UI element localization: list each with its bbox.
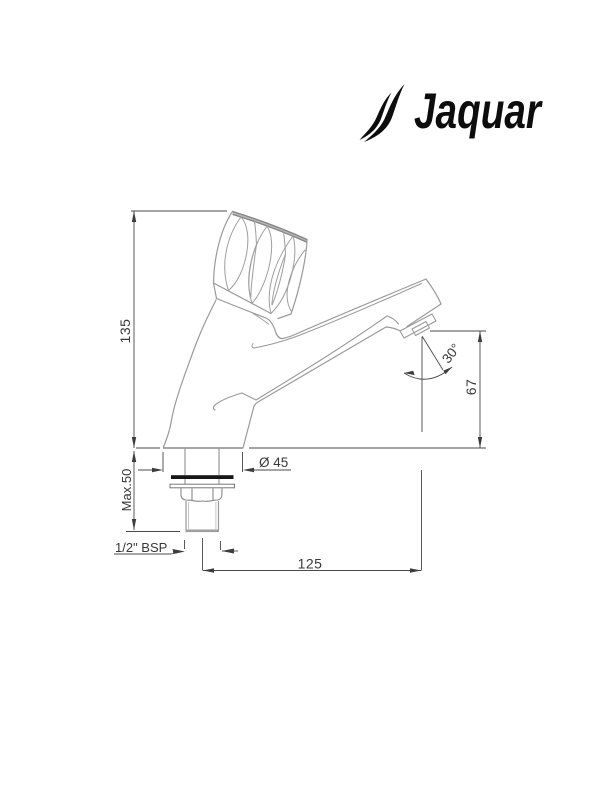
- svg-text:1/2" BSP: 1/2" BSP: [115, 540, 167, 555]
- svg-text:Jaquar: Jaquar: [414, 83, 543, 139]
- svg-text:Ø 45: Ø 45: [259, 455, 288, 470]
- svg-text:135: 135: [117, 319, 133, 344]
- svg-text:125: 125: [298, 556, 323, 572]
- svg-text:67: 67: [463, 379, 479, 396]
- svg-text:Max.50: Max.50: [119, 469, 134, 512]
